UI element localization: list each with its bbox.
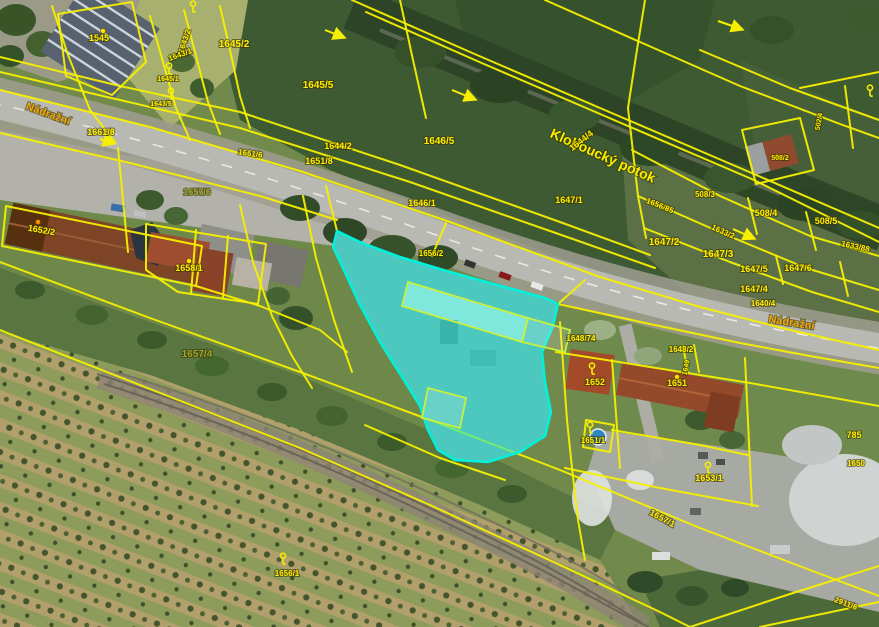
parcel-label: 1652: [585, 377, 605, 387]
parcel-label: 1647/6: [784, 263, 812, 273]
parcel-label: 508/3: [695, 190, 716, 199]
parcel-label: 1648/2: [669, 345, 694, 354]
parcel-label: 1647/3: [703, 249, 734, 260]
parcel-label: 1657/6: [183, 187, 211, 197]
parcel-label: 1646/1: [408, 198, 436, 208]
parcel-label: 1643/5: [150, 101, 172, 108]
parcel-label: 1647/5: [740, 264, 768, 274]
parcel-label: 1653/1: [695, 473, 723, 483]
parcel-label: 1658/1: [175, 263, 203, 273]
parcel-label: 1645/2: [219, 39, 250, 50]
parcel-label: 1645/5: [303, 80, 334, 91]
parcel-label: 1640/4: [751, 299, 776, 308]
parcel-label: 1647/2: [649, 237, 680, 248]
parcel-label: 508/4: [755, 208, 778, 218]
parcel-label: 1648/74: [567, 334, 596, 343]
parcel-label: 1645/1: [157, 76, 179, 83]
parcel-label: 1646/5: [424, 136, 455, 147]
map-viewport[interactable]: NádražníNádražníKloboucký potok15451643/…: [0, 0, 879, 627]
parcel-label: 1651: [667, 378, 687, 388]
cadastral-map[interactable]: NádražníNádražníKloboucký potok15451643/…: [0, 0, 879, 627]
parcel-label: 508/2: [771, 155, 789, 162]
parcel-label: 1650: [847, 459, 865, 468]
parcel-label: 1656/1: [275, 569, 300, 578]
parcel-label: 1661/8: [87, 127, 115, 137]
parcel-label: 1651/8: [305, 156, 333, 166]
parcel-label: 1647/4: [740, 284, 768, 294]
parcel-label: 1651/1: [581, 436, 606, 445]
parcel-label: 508/5: [815, 216, 838, 226]
parcel-label: 1545: [89, 33, 109, 43]
parcel-label: 1657/4: [182, 349, 213, 360]
parcel-label: 1656/2: [419, 249, 444, 258]
parcel-label: 785: [846, 430, 861, 440]
parcel-label: 1644/2: [324, 141, 352, 151]
parcel-label: 1647/1: [555, 195, 583, 205]
